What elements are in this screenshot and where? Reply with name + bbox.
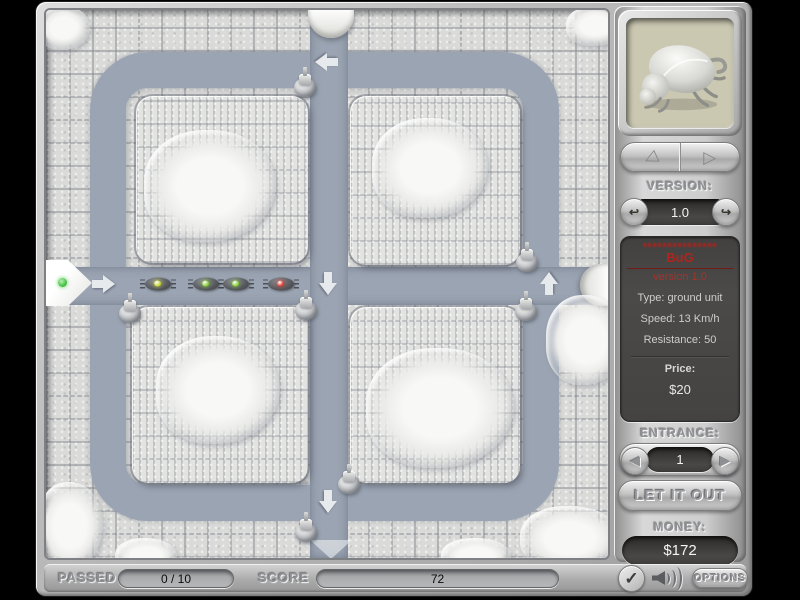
status-bar: PASSED 0 / 10 SCORE 72 ✓ OPTIONS: [44, 564, 746, 592]
entrance-next-button[interactable]: ▶: [711, 447, 739, 475]
version-selector: 1.0 ↩ ↪: [619, 196, 741, 228]
prev-unit-button[interactable]: ◁: [621, 143, 681, 171]
bug-eye: [154, 281, 161, 287]
active-entrance-indicator: [58, 278, 67, 287]
entrance-prev-button[interactable]: ◀: [621, 447, 649, 475]
checkmark-icon: ✓: [624, 569, 638, 589]
divider: [631, 356, 729, 357]
divider: [627, 268, 733, 269]
turret-barrel: [525, 242, 529, 251]
unit-type: Type: ground unit: [637, 292, 722, 304]
game-window: ◁ ▷ VERSION: 1.0 ↩ ↪ BuG version 1.0 Typ…: [36, 2, 752, 596]
snow-patch: [44, 8, 90, 50]
direction-arrow-right-icon: [91, 273, 117, 295]
turret-sprite[interactable]: [514, 291, 538, 321]
entrance-selector: 1 ◀ ▶: [619, 443, 741, 476]
version-prev-button[interactable]: ↩: [620, 198, 648, 226]
score-value: 72: [316, 569, 559, 588]
snow-patch: [566, 8, 610, 46]
bug-eye: [277, 281, 284, 287]
bug-sprite: [266, 276, 296, 293]
turret-barrel: [347, 464, 351, 473]
unit-tagline-smudge: [643, 243, 717, 247]
snow-patch: [115, 538, 177, 560]
game-board[interactable]: [44, 8, 610, 560]
unit-resistance: Resistance: 50: [644, 334, 717, 346]
snow-patch: [44, 482, 103, 560]
left-triangle-icon: ◀: [630, 453, 640, 469]
direction-arrow-left-icon: [313, 51, 339, 73]
turret-sprite[interactable]: [337, 464, 361, 494]
snow-patch: [520, 506, 610, 560]
direction-arrow-up-icon: [538, 270, 560, 296]
bug-portrait-icon: [629, 24, 731, 122]
score-label: SCORE: [258, 570, 309, 585]
next-unit-button[interactable]: ▷: [681, 143, 740, 171]
price-value: $20: [669, 382, 691, 397]
money-label: MONEY:: [614, 520, 746, 534]
passed-value: 0 / 10: [118, 569, 234, 588]
unit-portrait-frame: [618, 10, 742, 136]
sound-wave-icon: [671, 567, 682, 590]
turret-barrel: [304, 512, 308, 521]
options-button[interactable]: OPTIONS: [692, 568, 748, 588]
bug-sprite: [221, 276, 251, 293]
entrance-label: ENTRANCE:: [614, 426, 746, 440]
unit-version: version 1.0: [653, 271, 707, 283]
passed-label: PASSED: [58, 570, 117, 585]
version-next-icon: ↪: [721, 205, 731, 219]
version-next-button[interactable]: ↪: [712, 198, 740, 226]
unit-nav: ◁ ▷: [620, 142, 740, 172]
bug-eye: [202, 281, 209, 287]
turret-sprite[interactable]: [294, 512, 318, 542]
snow-patch: [546, 295, 610, 385]
right-triangle-icon: ▶: [720, 453, 730, 469]
turret-sprite[interactable]: [118, 293, 142, 323]
direction-arrow-down-icon: [317, 489, 339, 515]
turret-barrel: [128, 293, 132, 302]
turret-barrel: [303, 67, 307, 76]
sound-toggle-button[interactable]: [652, 568, 686, 589]
turret-barrel: [524, 291, 528, 300]
snow-patch: [441, 538, 511, 560]
prev-arrow-icon: ◁: [641, 147, 660, 168]
unit-name: BuG: [666, 250, 693, 265]
version-prev-icon: ↩: [629, 205, 639, 219]
bug-sprite: [143, 276, 173, 293]
entrance-value: 1: [646, 447, 714, 472]
price-label: Price:: [665, 363, 696, 375]
version-label: VERSION:: [614, 179, 746, 193]
bug-sprite: [191, 276, 221, 293]
unit-speed: Speed: 13 Km/h: [641, 313, 720, 325]
unit-info-panel: BuG version 1.0 Type: ground unit Speed:…: [620, 236, 740, 422]
bug-eye: [232, 281, 239, 287]
sidebar: ◁ ▷ VERSION: 1.0 ↩ ↪ BuG version 1.0 Typ…: [614, 6, 746, 562]
turret-barrel: [304, 290, 308, 299]
let-it-out-button[interactable]: LET IT OUT: [618, 480, 742, 511]
confirm-toggle-button[interactable]: ✓: [618, 565, 645, 592]
turret-sprite[interactable]: [294, 290, 318, 320]
turret-sprite[interactable]: [515, 242, 539, 272]
unit-portrait: [626, 18, 734, 128]
direction-arrow-down-icon: [317, 271, 339, 297]
money-value: $172: [622, 536, 738, 565]
next-arrow-icon: ▷: [703, 149, 716, 166]
